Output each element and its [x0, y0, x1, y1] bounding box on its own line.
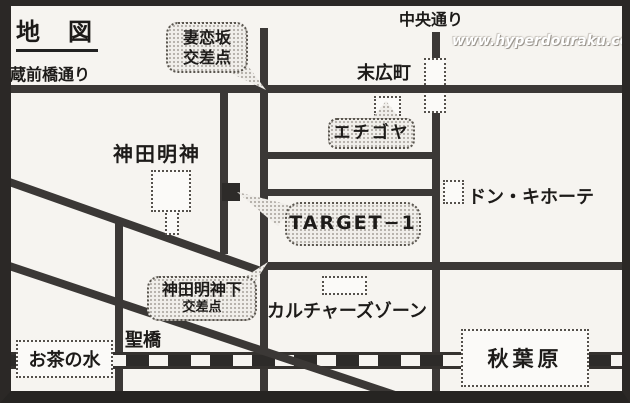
ochanomizu-station-box: お茶の水	[16, 340, 113, 378]
tsumakoizaka-intersection-bubble: 妻恋坂 交差点	[166, 22, 248, 73]
kanda-myojin-shrine-marker	[151, 170, 191, 212]
akihabara-station-box: 秋葉原	[461, 329, 589, 387]
kanda-myojin-label: 神田明神	[113, 138, 201, 167]
echigoya-bubble: エチゴヤ	[328, 118, 415, 149]
cultures-zone-building-marker	[322, 276, 367, 295]
ochanomizu-label: お茶の水	[29, 346, 101, 372]
hijiribashi-label: 聖橋	[125, 326, 161, 352]
akihabara-label: 秋葉原	[488, 343, 563, 373]
target-building-marker	[222, 183, 240, 201]
road-vertical-myojin-side	[220, 85, 228, 254]
site-watermark: www.hyperdouraku.com	[452, 33, 630, 49]
road-horizontal-middle-1	[262, 152, 438, 159]
echigoya-label: エチゴヤ	[334, 123, 410, 144]
chuo-dori-label: 中央通り	[399, 6, 463, 30]
tsumakoizaka-line1: 妻恋坂	[183, 28, 231, 48]
target1-bubble: TARGET−1	[285, 202, 421, 246]
kanda-myojin-shita-intersection-bubble: 神田明神下 交差点	[147, 276, 257, 321]
kuramaebashi-dori-label: 蔵前橋通り	[10, 61, 90, 85]
kanda-myojin-shita-line2: 交差点	[182, 300, 221, 316]
road-myojin-dori	[262, 262, 624, 270]
road-kuramaebashi-dori	[8, 85, 624, 93]
don-quijote-building-marker	[443, 180, 464, 204]
road-horizontal-middle-2	[262, 189, 438, 196]
suehirocho-station-label: 末広町	[357, 59, 411, 85]
kanda-myojin-approach-path	[165, 210, 179, 235]
cultures-zone-label: カルチャーズゾーン	[267, 297, 427, 323]
target1-label: TARGET−1	[289, 212, 417, 236]
kanda-myojin-shita-line1: 神田明神下	[162, 280, 242, 300]
tsumakoizaka-line2: 交差点	[183, 48, 231, 68]
map-title: 地 図	[16, 12, 98, 52]
don-quijote-label: ドン・キホーテ	[468, 183, 594, 209]
hand-drawn-map: 妻恋坂 交差点 エチゴヤ TARGET−1 神田明神下 交差点 地 図 蔵前橋通…	[0, 0, 630, 403]
